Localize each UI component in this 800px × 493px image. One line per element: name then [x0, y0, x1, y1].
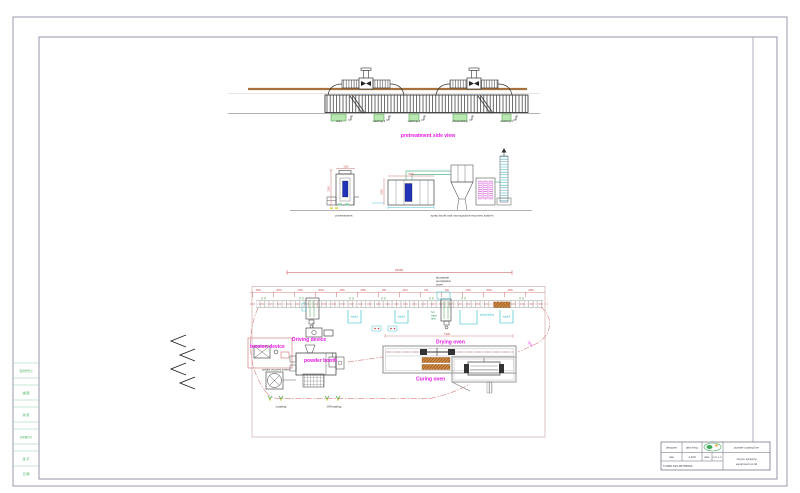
chain-dim: 1700 [297, 289, 303, 292]
tank-label: washing 1 [373, 119, 386, 123]
plan-tank-label: phosphating [480, 313, 495, 317]
date-label: date [704, 455, 710, 459]
pretreatment-side-view: skim washing 1 washing 2 phosphating was… [228, 68, 540, 139]
spray-booth-elevation: 2350 3200 spray booth and monocyclone re… [372, 148, 511, 218]
drying-dim: 7300 [444, 332, 451, 336]
hanger-marks [262, 297, 523, 300]
curing-oven [452, 357, 516, 393]
chain-dimension-row [250, 292, 545, 297]
dim-text: 1100 [343, 166, 349, 169]
title-block: designer jake feng rate 1:100 date 2021.… [661, 442, 770, 470]
strip-cell-label: 描 图 [23, 390, 30, 395]
elevation-views: 2260 1100 pretreatment [290, 148, 532, 218]
phone-value: T:0086-523-86759666 [663, 464, 693, 468]
chain-dim: 900 [382, 289, 387, 292]
oven-heater [422, 365, 450, 370]
company-name-line2: equipment co.ltd [736, 462, 758, 466]
strip-cell-label: 校 核 [23, 412, 30, 417]
strip-cell-label: 借用件登记 [20, 369, 33, 373]
pretreatment-elevation: 2260 1100 pretreatment [327, 166, 359, 218]
cyan-dimension-lines [372, 203, 434, 209]
drying-oven-label: Drying oven [436, 340, 465, 346]
chain-dim: 1500 [507, 289, 513, 292]
company-name-line1: xinyue spraying [736, 457, 756, 461]
chain-dim: 1450 [339, 289, 345, 292]
oven-heater [422, 358, 450, 363]
chain-dim: 2050 [528, 289, 534, 292]
dip-tank-fill [343, 181, 349, 197]
exhaust-fan-unit [436, 68, 512, 95]
plan-tank-label: wash3 [503, 315, 511, 319]
cad-drawing-sheet: 借用件登记 描 图 校 核 旧底图总号 签 字 日 期 [0, 0, 800, 493]
overall-dim-text: 24050 [395, 268, 404, 272]
margin-strip: 借用件登记 描 图 校 核 旧底图总号 签 字 日 期 [13, 363, 39, 476]
plan-tank-label: wash2 [398, 315, 406, 319]
conveyor-loop-path [251, 307, 550, 399]
oven-bridge-segment [494, 302, 510, 308]
flow-arrows [171, 335, 195, 389]
plan-tank-label: wash1 [351, 315, 359, 319]
exhaust-fan-unit [328, 68, 404, 95]
chain-dim: 900 [445, 289, 450, 292]
designer-label: designer [666, 446, 677, 450]
booth-filter-cartridge [405, 184, 412, 202]
offloading-label: Off-loading [327, 405, 342, 409]
recovery-label: powder recovery system [262, 368, 290, 372]
tension-device-label: tension device [250, 344, 285, 350]
product-title: powder coating line [734, 446, 759, 450]
cyclone [451, 165, 473, 210]
tank-label: washing 2 [408, 119, 421, 123]
gauge-marks [372, 326, 397, 331]
dim-text: 3200 [408, 173, 414, 176]
chain-dim: 1443 [402, 289, 408, 292]
chain-dim: 1500 [255, 289, 261, 292]
strip-cell-label: 旧底图总号 [20, 435, 33, 439]
pretreatment-conveyor-band [250, 301, 548, 308]
dim-text: 2350 [381, 189, 384, 195]
after-filter-box [476, 178, 500, 205]
curing-oven-label: Curing oven [416, 377, 445, 383]
company-logo [704, 443, 721, 451]
strip-cell-label: 签 字 [23, 456, 30, 461]
powder-booth-label: powder booth [304, 358, 337, 364]
hot-tank-label: tank [431, 318, 436, 321]
dim-text: 2260 [328, 186, 331, 192]
exhaust-stack [497, 148, 511, 205]
tank-label: skim [336, 119, 342, 123]
designer-value: jake feng [685, 446, 698, 450]
driving-device-label: Driving device [292, 337, 326, 343]
chain-dim: 2000 [318, 289, 324, 292]
chain-dim: 1700 [465, 289, 471, 292]
drawing-canvas: 借用件登记 描 图 校 核 旧底图总号 签 字 日 期 [0, 0, 800, 493]
chain-dim: 2600 [486, 289, 492, 292]
elevation-caption: spray booth and monocyclone recovery sys… [431, 214, 494, 218]
rate-label: rate [669, 455, 674, 459]
approach-dim: 7500 [526, 340, 534, 348]
strip-cell-label: 日 期 [23, 471, 30, 476]
powder-recovery-system [266, 372, 324, 389]
tank-label: phosphating [452, 119, 468, 123]
tower-label: tower [436, 283, 443, 287]
chain-dim: 1500 [360, 289, 366, 292]
rate-value: 1:100 [688, 455, 696, 459]
plan-view: 24050 1500 2570 1700 2000 1450 1500 900 … [171, 268, 550, 437]
chain-dim: 2570 [276, 289, 282, 292]
date-value: 2021.6.17 [713, 457, 724, 459]
side-view-caption: pretreatment side view [401, 133, 455, 139]
chain-dim: 140 [424, 289, 429, 292]
tension-device [248, 338, 292, 368]
elevation-caption: pretreatment [335, 214, 352, 218]
loading-label: Loading [276, 405, 287, 409]
tank-label: washing 3 [500, 119, 513, 123]
